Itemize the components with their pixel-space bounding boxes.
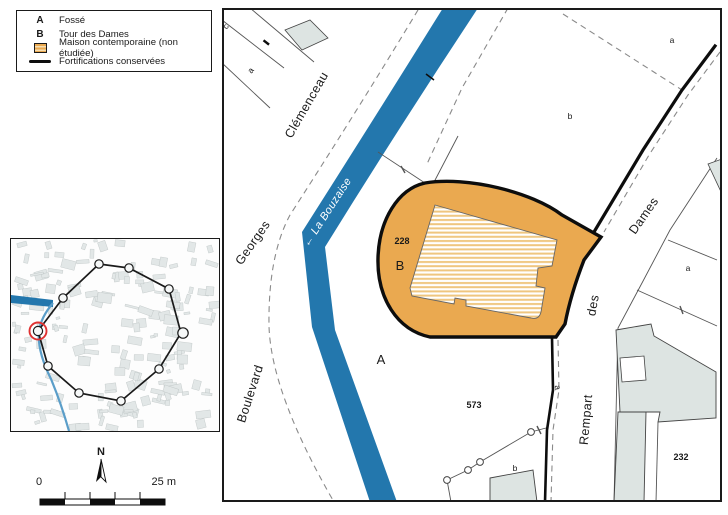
legend-row-fosse: A Fossé bbox=[21, 14, 207, 27]
legend-key-a: A bbox=[21, 15, 59, 26]
parcel-letter-a-right: a bbox=[686, 263, 691, 273]
parcel-letter-b-top: b bbox=[568, 111, 573, 121]
legend-label-fortifications: Fortifications conservées bbox=[59, 56, 165, 67]
zone-label-fosse: A bbox=[377, 352, 386, 367]
building-rempart-strip bbox=[614, 412, 646, 502]
zone-label-tour: B bbox=[396, 258, 405, 273]
parcel-number-228: 228 bbox=[394, 236, 409, 246]
legend-row-fortifications: Fortifications conservées bbox=[21, 55, 207, 68]
legend-box: A Fossé B Tour des Dames Maison contempo… bbox=[16, 10, 212, 72]
scale-end-label: 25 m bbox=[152, 476, 176, 488]
maison-swatch-icon bbox=[34, 43, 47, 53]
inset-town-map bbox=[10, 238, 220, 432]
town-blocks-texture bbox=[12, 240, 220, 432]
figure-plan-tour-des-dames: A Fossé B Tour des Dames Maison contempo… bbox=[0, 0, 728, 515]
building-notch bbox=[620, 356, 646, 382]
legend-row-maison: Maison contemporaine (non étudiée) bbox=[21, 41, 207, 54]
fortification-line-icon bbox=[29, 60, 51, 63]
scale-bar-graphic bbox=[36, 491, 176, 507]
parcel-letter-b-bottom: b bbox=[513, 463, 518, 473]
parcel-number-573: 573 bbox=[466, 400, 481, 410]
parcel-number-232: 232 bbox=[673, 452, 688, 462]
north-label: N bbox=[86, 446, 116, 458]
parcel-letter-a-topright: a bbox=[670, 35, 675, 45]
legend-label-fosse: Fossé bbox=[59, 15, 85, 26]
legend-key-b: B bbox=[21, 29, 59, 40]
scale-bar: 0 25 m bbox=[36, 476, 176, 506]
scale-start-label: 0 bbox=[36, 476, 42, 488]
main-site-plan: Clémenceau Georges Boulevard Dames des R… bbox=[222, 8, 722, 502]
